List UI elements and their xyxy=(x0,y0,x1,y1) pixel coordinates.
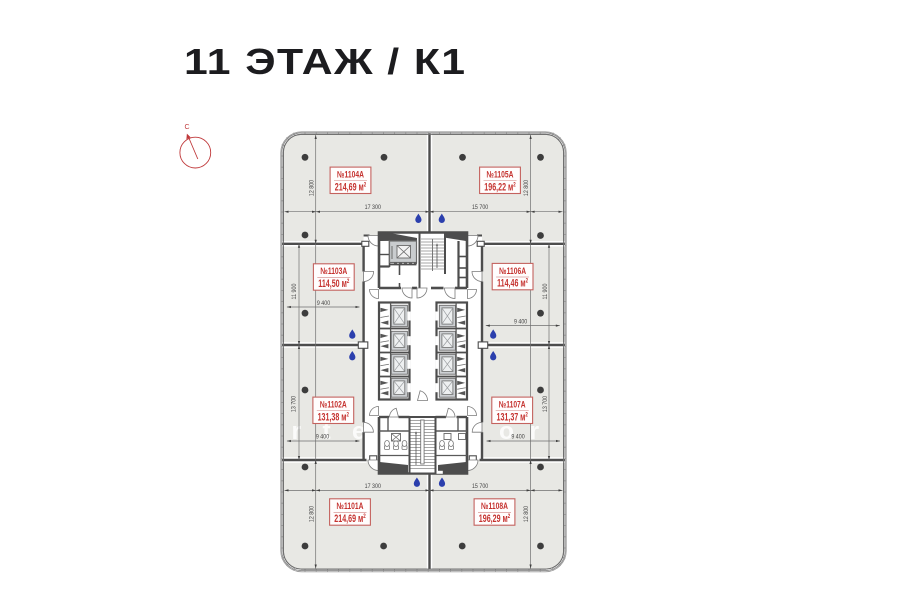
svg-text:214,69 м2: 214,69 м2 xyxy=(335,181,366,193)
svg-text:15 700: 15 700 xyxy=(472,484,489,491)
svg-text:№1104А: №1104А xyxy=(337,170,364,180)
svg-text:№1106А: №1106А xyxy=(499,266,526,276)
svg-text:196,29 м2: 196,29 м2 xyxy=(479,513,510,525)
svg-text:12 800: 12 800 xyxy=(524,505,531,522)
svg-text:12 800: 12 800 xyxy=(309,179,316,196)
svg-text:12 800: 12 800 xyxy=(309,505,316,522)
svg-text:214,69 м2: 214,69 м2 xyxy=(334,513,365,525)
svg-text:№1108А: №1108А xyxy=(481,501,508,511)
svg-text:15 700: 15 700 xyxy=(472,205,489,212)
svg-text:11 ЭТАЖ / К1: 11 ЭТАЖ / К1 xyxy=(184,42,466,82)
svg-text:9 400: 9 400 xyxy=(316,434,330,441)
svg-text:13 700: 13 700 xyxy=(291,395,298,412)
svg-text:11 900: 11 900 xyxy=(543,283,550,300)
svg-text:№1107А: №1107А xyxy=(499,400,526,410)
svg-text:№1102А: №1102А xyxy=(320,400,347,410)
svg-text:131,38 м2: 131,38 м2 xyxy=(318,411,349,423)
svg-text:196,22 м2: 196,22 м2 xyxy=(484,181,515,193)
svg-text:9 400: 9 400 xyxy=(511,434,525,441)
svg-text:12 800: 12 800 xyxy=(524,179,531,196)
svg-text:№1101А: №1101А xyxy=(337,501,364,511)
svg-text:114,46 м2: 114,46 м2 xyxy=(497,277,528,289)
svg-text:9 400: 9 400 xyxy=(514,319,528,326)
svg-text:114,50 м2: 114,50 м2 xyxy=(318,278,349,290)
svg-text:17 300: 17 300 xyxy=(365,205,382,212)
svg-text:131,37 м2: 131,37 м2 xyxy=(497,411,528,423)
svg-text:№1103А: №1103А xyxy=(320,266,347,276)
svg-text:17 300: 17 300 xyxy=(365,484,382,491)
svg-text:11 900: 11 900 xyxy=(292,283,299,300)
svg-text:13 700: 13 700 xyxy=(543,395,550,412)
svg-text:№1105А: №1105А xyxy=(487,170,514,180)
svg-text:С: С xyxy=(185,124,190,131)
svg-text:9 400: 9 400 xyxy=(317,300,331,307)
